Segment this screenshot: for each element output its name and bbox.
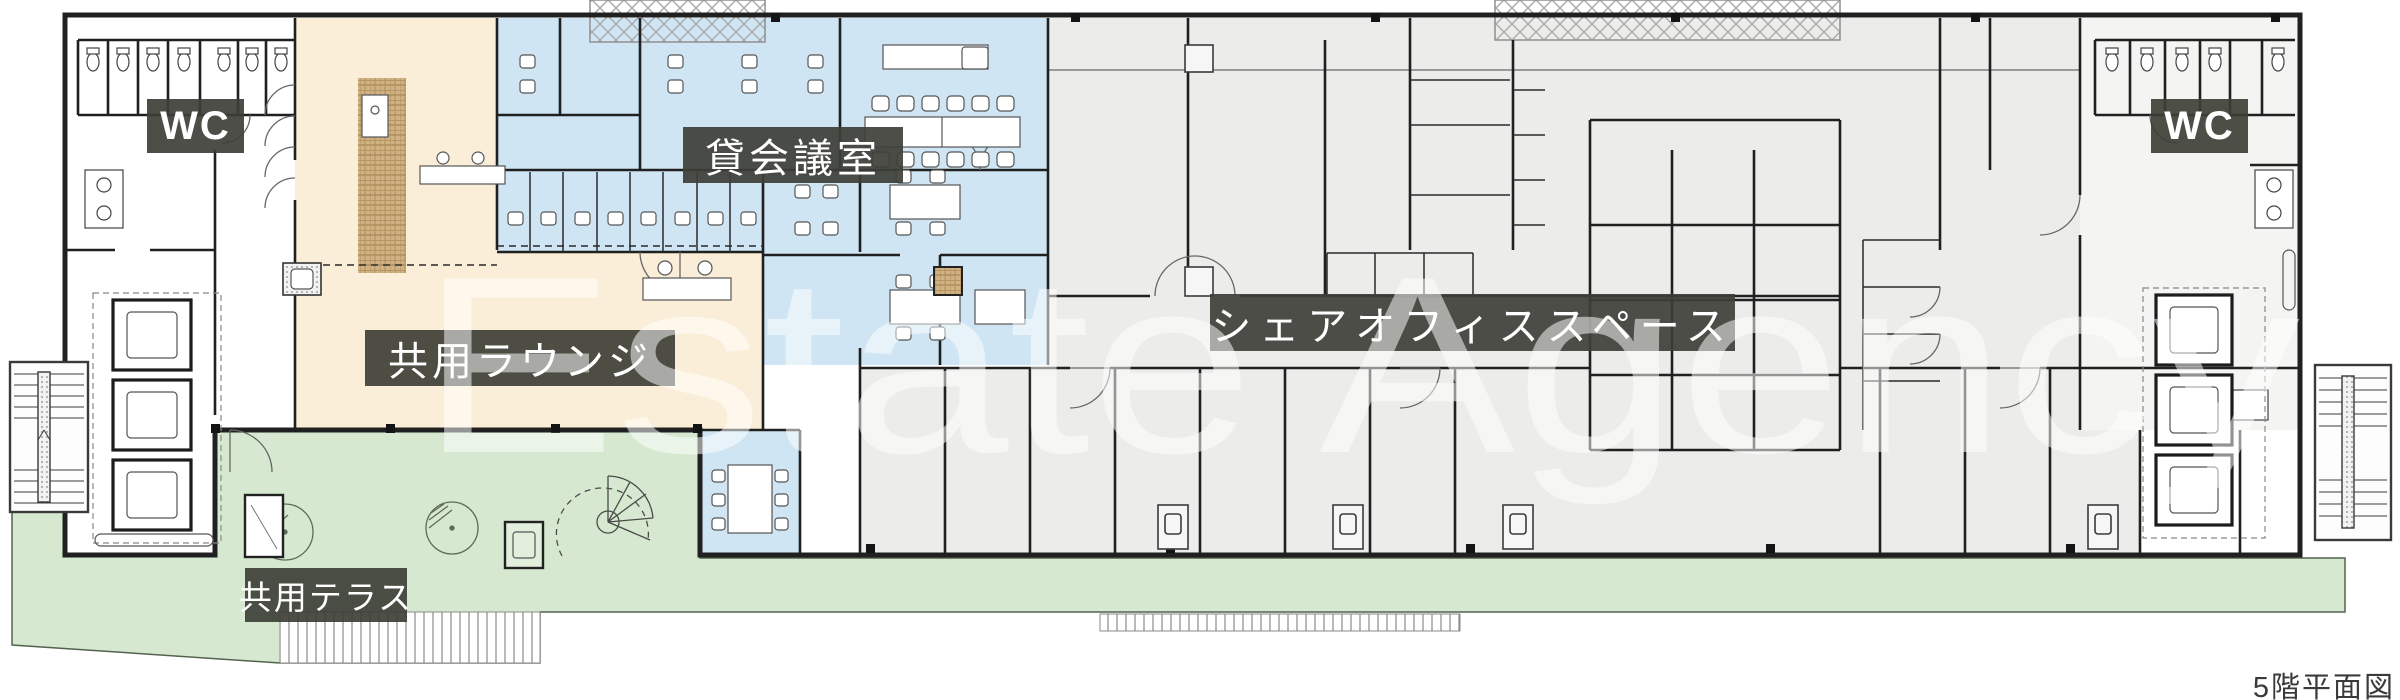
label-rental-meeting-room: 貸会議室 (683, 127, 903, 183)
label-wc-left: WC (147, 99, 244, 153)
terrace-vestibule (245, 495, 283, 557)
floor-caption: 5階平面図 (2210, 664, 2395, 700)
label-wc-right: WC (2151, 99, 2248, 153)
planter-box (505, 522, 543, 568)
label-shared-lounge: 共用ラウンジ (365, 330, 675, 386)
stairwell-left (10, 362, 88, 512)
stairwell-right (2315, 365, 2391, 540)
label-share-office-space: シェアオフィススペース (1210, 294, 1735, 351)
zone-share-office (860, 18, 2300, 555)
label-shared-terrace: 共用テラス (245, 568, 407, 622)
floor-plan-canvas: WC 貸会議室 共用ラウンジ シェアオフィススペース 共用テラス WC 5階平面… (0, 0, 2400, 700)
